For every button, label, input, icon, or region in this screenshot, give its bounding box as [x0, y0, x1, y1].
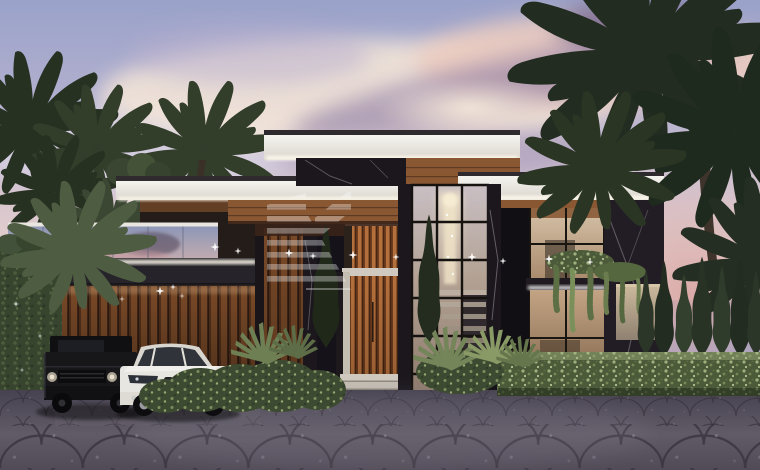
planter-ledge — [526, 278, 608, 290]
rendering-image — [0, 0, 760, 470]
chandelier — [438, 192, 462, 288]
door-handle — [372, 302, 374, 342]
entrance-door — [350, 276, 398, 374]
